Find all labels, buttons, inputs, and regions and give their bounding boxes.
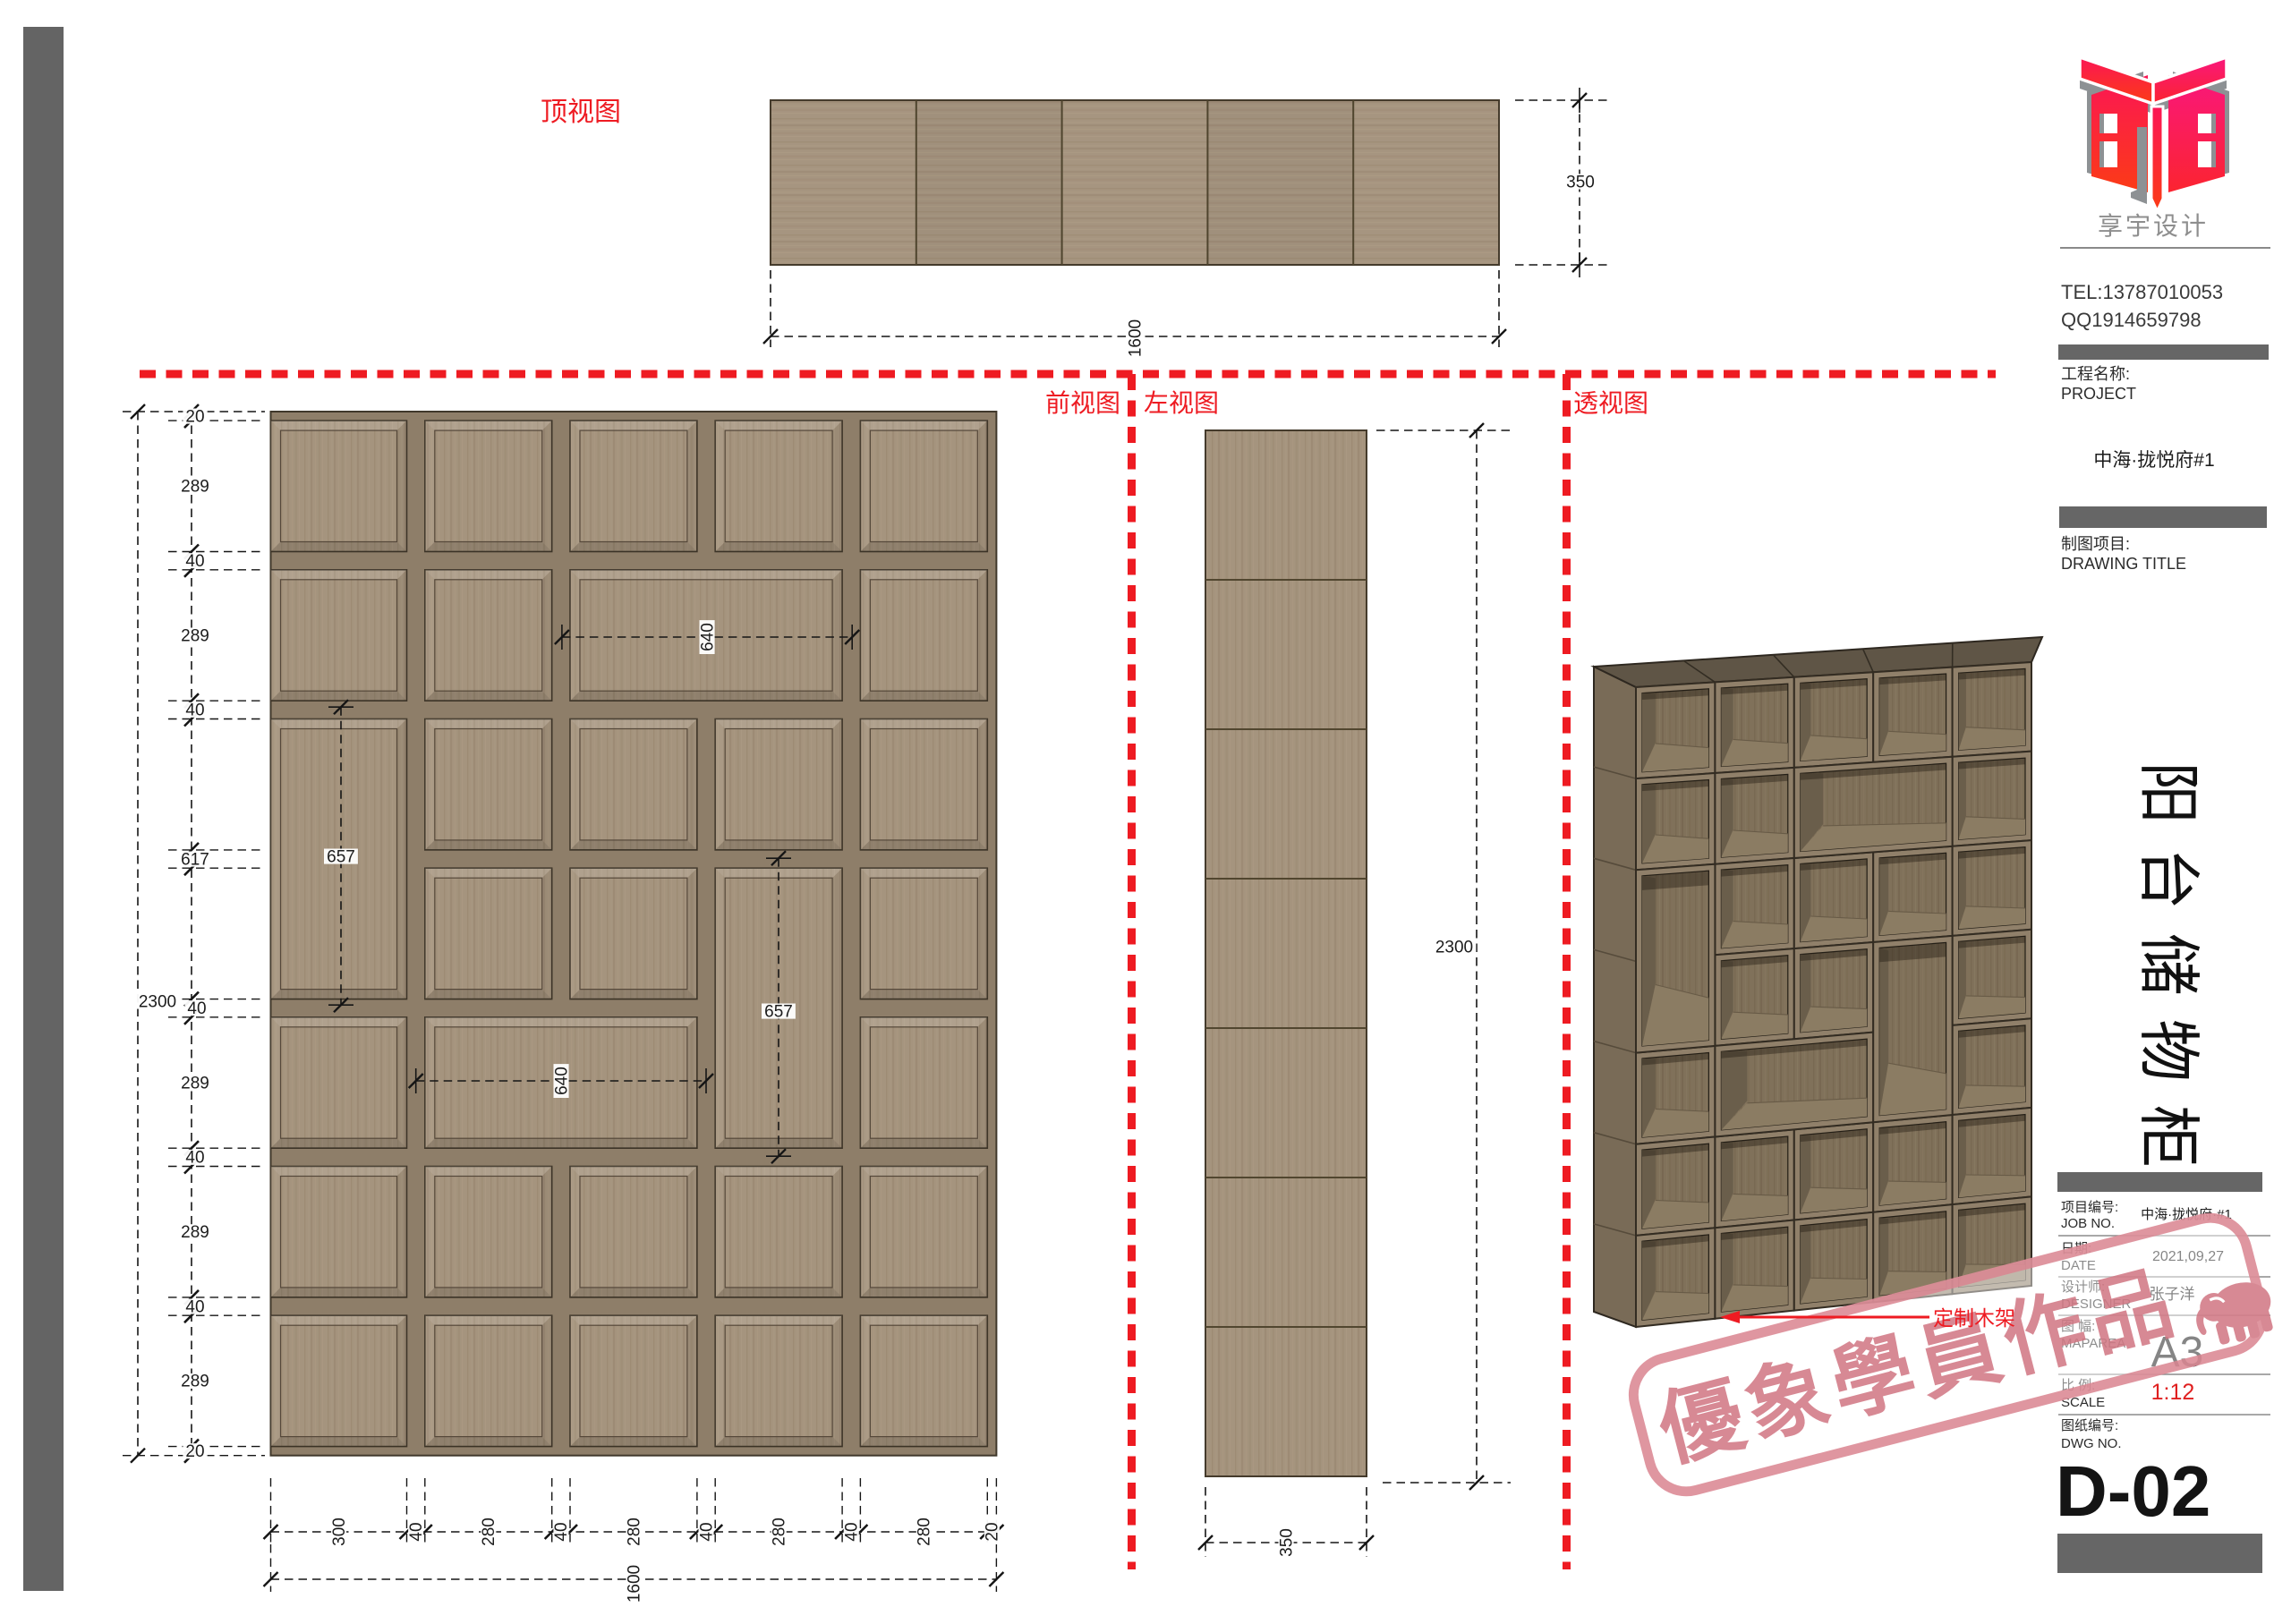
svg-text:289: 289 [181, 1074, 209, 1093]
svg-text:20: 20 [185, 1442, 204, 1461]
svg-text:制图项目:: 制图项目: [2061, 535, 2130, 553]
svg-text:40: 40 [697, 1522, 716, 1541]
svg-text:657: 657 [764, 1002, 793, 1021]
svg-text:40: 40 [185, 1297, 204, 1316]
svg-text:300: 300 [330, 1518, 349, 1546]
svg-text:工程名称:: 工程名称: [2061, 365, 2130, 383]
svg-text:2300: 2300 [139, 992, 176, 1011]
svg-text:中海·拢悦府#1: 中海·拢悦府#1 [2093, 450, 2214, 471]
svg-text:40: 40 [185, 552, 204, 571]
svg-text:左视图: 左视图 [1144, 389, 1219, 417]
svg-text:2300: 2300 [1435, 938, 1473, 957]
svg-text:定制木架: 定制木架 [1933, 1306, 2015, 1330]
svg-text:40: 40 [187, 999, 206, 1018]
svg-text:JOB NO.: JOB NO. [2061, 1216, 2115, 1231]
svg-text:280: 280 [625, 1518, 643, 1546]
svg-text:640: 640 [552, 1067, 571, 1095]
svg-text:289: 289 [181, 478, 209, 497]
svg-text:PROJECT: PROJECT [2061, 385, 2136, 403]
svg-text:阳台储物柜: 阳台储物柜 [2133, 761, 2203, 1191]
svg-text:617: 617 [181, 850, 209, 869]
svg-text:DRAWING TITLE: DRAWING TITLE [2061, 555, 2186, 573]
svg-text:D-02: D-02 [2056, 1451, 2210, 1531]
svg-text:289: 289 [181, 1373, 209, 1391]
svg-text:享宇设计: 享宇设计 [2098, 212, 2209, 240]
svg-text:QQ1914659798: QQ1914659798 [2061, 309, 2202, 331]
svg-text:DWG NO.: DWG NO. [2061, 1436, 2122, 1451]
svg-text:40: 40 [552, 1522, 571, 1541]
svg-text:1:12: 1:12 [2151, 1380, 2195, 1405]
svg-text:40: 40 [185, 701, 204, 720]
svg-text:图纸编号:: 图纸编号: [2061, 1418, 2118, 1433]
svg-text:280: 280 [771, 1518, 789, 1546]
svg-text:280: 280 [916, 1518, 934, 1546]
svg-text:TEL:13787010053: TEL:13787010053 [2061, 281, 2223, 303]
svg-text:40: 40 [185, 1149, 204, 1168]
svg-text:顶视图: 顶视图 [541, 98, 621, 127]
svg-text:前视图: 前视图 [1045, 389, 1120, 417]
svg-text:项目编号:: 项目编号: [2061, 1200, 2118, 1215]
svg-text:1600: 1600 [1126, 319, 1145, 357]
svg-text:280: 280 [480, 1518, 498, 1546]
svg-text:20: 20 [984, 1522, 1002, 1541]
svg-text:289: 289 [181, 626, 209, 645]
svg-text:1600: 1600 [625, 1565, 643, 1603]
svg-text:350: 350 [1277, 1528, 1296, 1557]
svg-text:40: 40 [407, 1522, 426, 1541]
svg-text:40: 40 [843, 1522, 862, 1541]
svg-text:350: 350 [1566, 173, 1595, 191]
svg-text:640: 640 [698, 623, 717, 651]
svg-text:289: 289 [181, 1223, 209, 1242]
svg-text:657: 657 [327, 847, 355, 866]
svg-text:20: 20 [185, 407, 204, 426]
svg-text:透视图: 透视图 [1573, 389, 1648, 417]
